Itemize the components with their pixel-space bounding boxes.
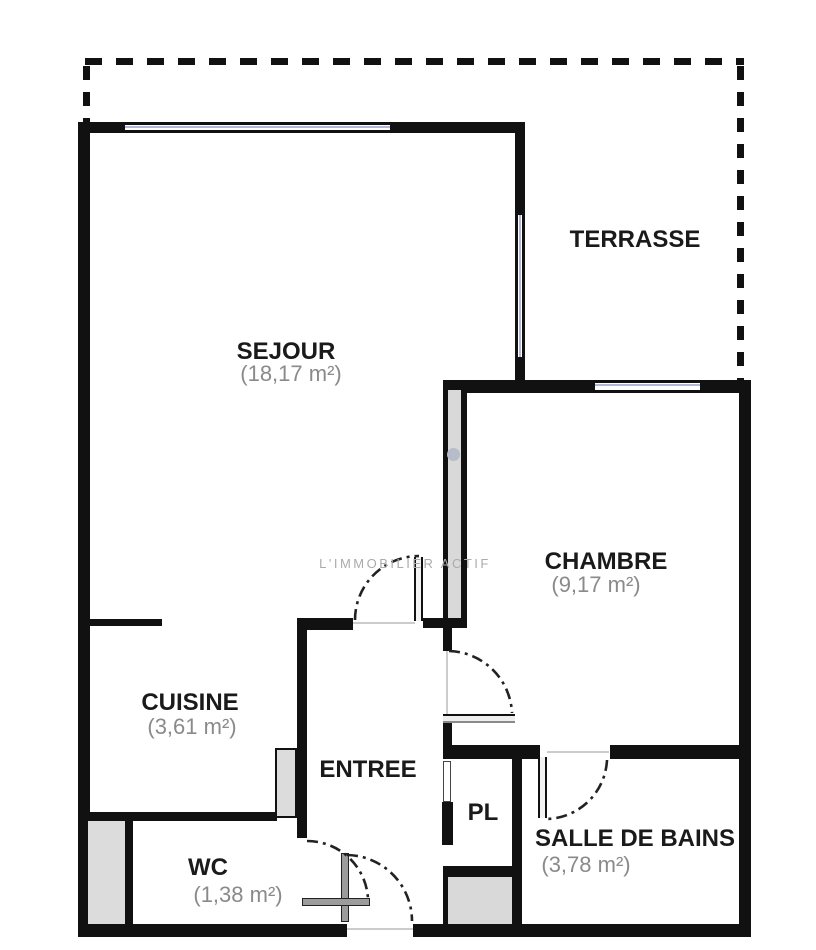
room-label-wc: WC bbox=[188, 856, 228, 880]
room-area-sejour: (18,17 m²) bbox=[240, 363, 341, 385]
watermark-text: L'IMMOBILIER ACTIF bbox=[319, 556, 491, 571]
door-swing-arcs bbox=[0, 0, 816, 950]
room-area-cuisine: (3,61 m²) bbox=[147, 716, 236, 738]
room-area-salle-de-bains: (3,78 m²) bbox=[541, 854, 630, 876]
room-label-entree: ENTREE bbox=[319, 758, 416, 782]
room-label-chambre: CHAMBRE bbox=[545, 550, 668, 574]
room-label-salle-de-bains: SALLE DE BAINS bbox=[535, 827, 735, 851]
room-label-terrasse: TERRASSE bbox=[570, 228, 701, 252]
room-label-cuisine: CUISINE bbox=[141, 691, 238, 715]
room-area-wc: (1,38 m²) bbox=[193, 884, 282, 906]
room-area-chambre: (9,17 m²) bbox=[551, 574, 640, 596]
room-label-placard: PL bbox=[468, 801, 499, 825]
floorplan-canvas: TERRASSE SEJOUR (18,17 m²) CHAMBRE (9,17… bbox=[0, 0, 816, 950]
door-arc-wc bbox=[307, 841, 368, 899]
door-arc-chambre bbox=[449, 651, 512, 713]
watermark-logo-dot bbox=[447, 448, 460, 461]
door-arc-bathroom bbox=[547, 760, 607, 819]
